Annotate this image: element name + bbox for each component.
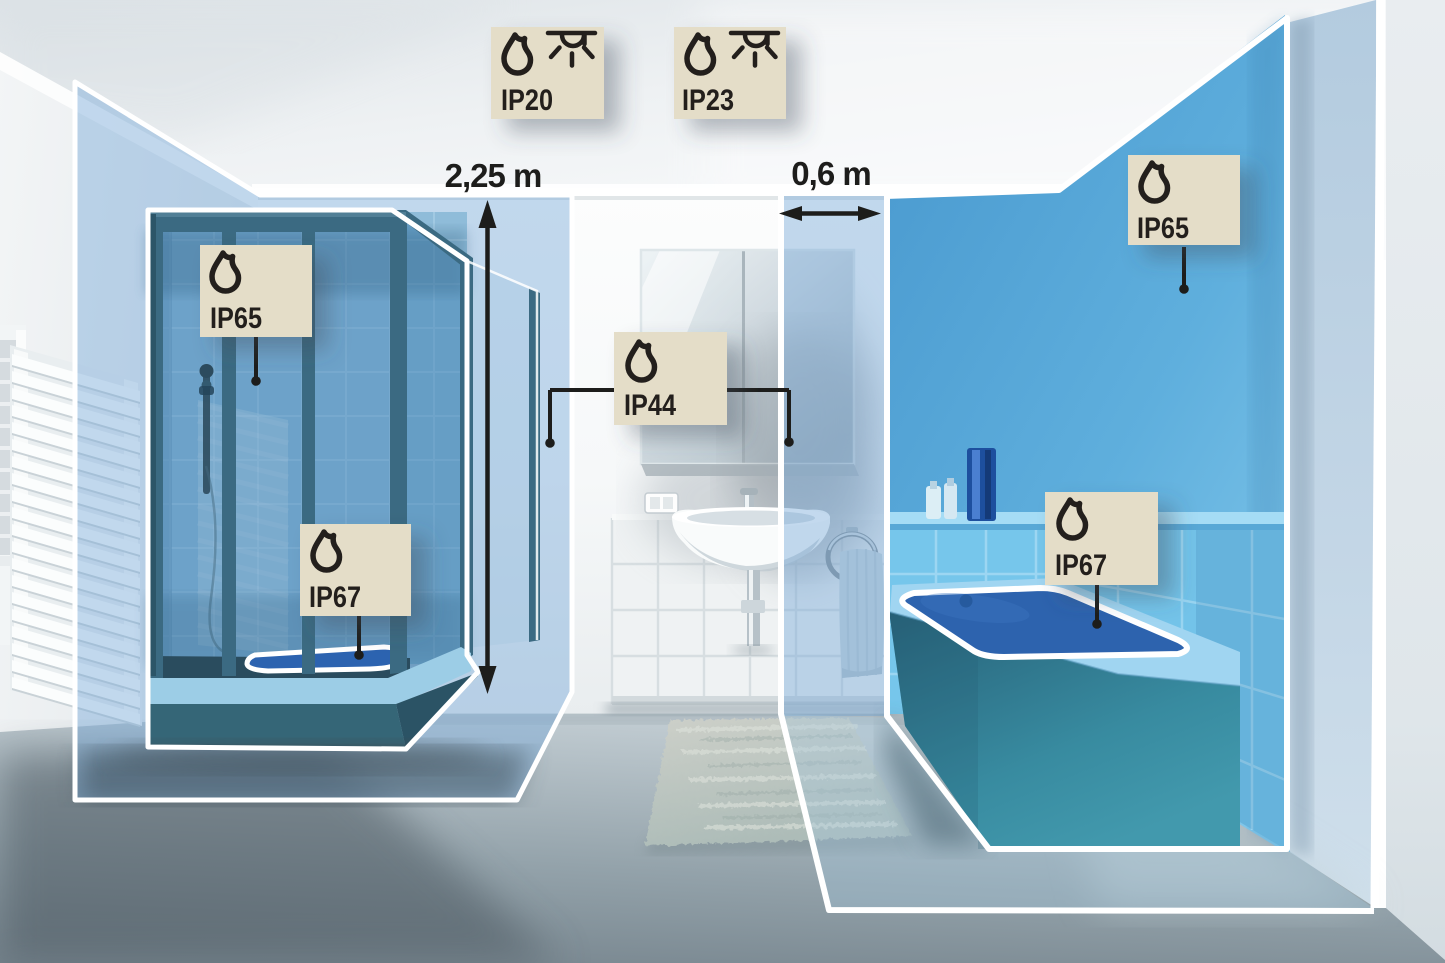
svg-text:IP23: IP23 — [682, 84, 734, 117]
svg-text:2,25 m: 2,25 m — [445, 157, 542, 194]
svg-text:IP65: IP65 — [1137, 212, 1189, 245]
svg-text:IP67: IP67 — [1055, 549, 1107, 582]
svg-text:IP20: IP20 — [501, 84, 553, 117]
svg-text:IP67: IP67 — [309, 581, 361, 614]
svg-text:0,6 m: 0,6 m — [791, 155, 870, 192]
svg-text:IP44: IP44 — [624, 389, 676, 422]
svg-text:IP65: IP65 — [210, 302, 262, 335]
